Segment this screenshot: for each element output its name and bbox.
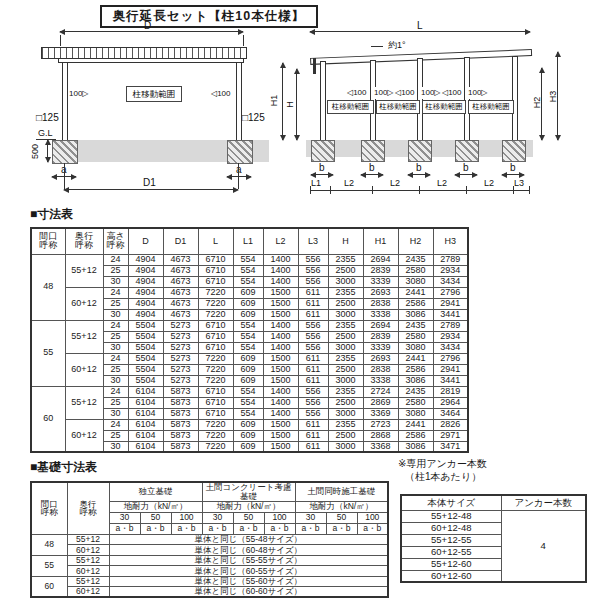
dim-value-cell: 554 [233, 265, 263, 276]
dim-value-cell: 5504 [128, 364, 163, 375]
dim-value-cell: 5273 [163, 353, 198, 364]
move-arrow-left-icon: ◁100 [442, 87, 462, 99]
dim-value-cell: 1500 [263, 375, 298, 386]
dim-value-cell: 3434 [433, 276, 468, 287]
table-row: 6055+12単体と同じ（55-60サイズ） [31, 576, 388, 587]
dim-value-cell: 2580 [398, 265, 433, 276]
table-row: 5555+12245504527367105541400556235526942… [31, 320, 468, 331]
depth-name-cell: 60+12 [65, 419, 103, 452]
dim-value-cell: 2435 [398, 386, 433, 397]
dim-value-cell: 4904 [128, 276, 163, 287]
dim-value-cell: 7220 [198, 441, 233, 452]
dim-value-cell: 2789 [433, 254, 468, 265]
dim-value-cell: 609 [233, 441, 263, 452]
dim-label-l2: L2 [437, 179, 447, 188]
dim-value-cell: 4673 [163, 309, 198, 320]
dim-value-cell: 5273 [163, 342, 198, 353]
dim-value-cell: 3471 [433, 441, 468, 452]
post-move-range-label: 柱移動範囲 [468, 100, 514, 114]
load-value-header: 30 [109, 512, 140, 523]
anchor-note-line2: （柱1本あたり） [398, 471, 487, 484]
foundation-table: 間口 呼称奥行 呼称独立基礎土間コンクリート考慮基礎土間同時施工基礎地耐力（kN… [30, 481, 389, 598]
move-arrow-left-icon: ◁100 [211, 88, 231, 100]
dimension-line-500 [47, 140, 48, 162]
dim-value-cell: 609 [233, 419, 263, 430]
dim-label-l3: L3 [514, 179, 524, 188]
dim-value-cell: 5873 [163, 408, 198, 419]
post-size-label-left: □125 [36, 113, 59, 123]
anchor-note-line1: ※専用アンカー本数 [398, 458, 487, 471]
height-name-cell: 24 [103, 353, 128, 364]
dim-value-cell: 2971 [433, 430, 468, 441]
foundation-table-heading: ■基礎寸法表 [30, 459, 97, 476]
page-title: 奥行延長セット【柱10本仕様】 [100, 5, 318, 28]
dim-value-cell: 3086 [398, 309, 433, 320]
dim-value-cell: 7220 [198, 298, 233, 309]
dim-value-cell: 7220 [198, 287, 233, 298]
dimension-line-b [502, 174, 524, 175]
ab-header: a・b [171, 523, 202, 534]
dim-value-cell: 2934 [433, 265, 468, 276]
height-name-cell: 24 [103, 287, 128, 298]
dim-value-cell: 1400 [263, 397, 298, 408]
column-header: L [198, 228, 233, 254]
dim-value-cell: 2693 [363, 353, 398, 364]
table-row: 60+1224610458737220609150061123552723244… [31, 419, 468, 430]
dimension-line-h1 [282, 63, 283, 140]
dim-value-cell: 3080 [398, 342, 433, 353]
dim-value-cell: 556 [298, 408, 328, 419]
dim-value-cell: 3441 [433, 375, 468, 386]
dim-value-cell: 6104 [128, 397, 163, 408]
height-name-cell: 25 [103, 331, 128, 342]
width-name-cell: 55 [31, 555, 67, 576]
dim-value-cell: 5873 [163, 441, 198, 452]
post-move-range-label: 柱移動範囲 [422, 100, 466, 114]
dim-value-cell: 5273 [163, 331, 198, 342]
dim-value-cell: 3080 [398, 408, 433, 419]
dim-value-cell: 2838 [363, 364, 398, 375]
column-header: H3 [433, 228, 468, 254]
dim-value-cell: 2580 [398, 397, 433, 408]
dim-label-b: b [463, 163, 469, 173]
dim-value-cell: 5873 [163, 386, 198, 397]
dim-value-cell: 4904 [128, 287, 163, 298]
dim-label-l2: L2 [390, 179, 400, 188]
footing [408, 140, 432, 162]
dim-value-cell: 554 [233, 276, 263, 287]
dim-value-cell: 554 [233, 408, 263, 419]
dim-value-cell: 3080 [398, 276, 433, 287]
dim-value-cell: 6710 [198, 342, 233, 353]
dim-label-h3: H3 [549, 91, 558, 103]
dimension-line-h [296, 69, 297, 140]
dim-label-l2: L2 [484, 179, 494, 188]
table-row: 60+1224490446737220609150061123552693244… [31, 287, 468, 298]
body-size-cell: 55+12-48 [401, 510, 501, 522]
dim-value-cell: 3086 [398, 441, 433, 452]
dim-value-cell: 609 [233, 430, 263, 441]
dim-value-cell: 2441 [398, 419, 433, 430]
depth-name-cell: 60+12 [67, 545, 109, 556]
dim-label-l: L [417, 21, 423, 31]
dim-value-cell: 2789 [433, 320, 468, 331]
dim-value-cell: 4673 [163, 287, 198, 298]
table-row: 60+12単体と同じ（60-48サイズ） [31, 545, 388, 556]
extension-line [238, 163, 239, 189]
dim-value-cell: 5504 [128, 320, 163, 331]
height-name-cell: 24 [103, 320, 128, 331]
dimension-line-b [455, 174, 477, 175]
dim-value-cell: 5273 [163, 375, 198, 386]
dim-value-cell: 5873 [163, 430, 198, 441]
depth-name-cell: 55+12 [67, 534, 109, 545]
ab-header: a・b [295, 523, 326, 534]
dim-value-cell: 609 [233, 287, 263, 298]
front-beam [58, 58, 244, 63]
dim-value-cell: 4904 [128, 265, 163, 276]
dim-value-cell: 554 [233, 386, 263, 397]
dim-value-cell: 609 [233, 364, 263, 375]
height-name-cell: 24 [103, 419, 128, 430]
dim-value-cell: 7220 [198, 430, 233, 441]
footing-left [52, 140, 78, 164]
dim-value-cell: 2586 [398, 364, 433, 375]
table-row: 4855+12244904467367105541400556235526942… [31, 254, 468, 265]
dim-value-cell: 2941 [433, 364, 468, 375]
dim-value-cell: 611 [298, 287, 328, 298]
dim-value-cell: 1400 [263, 408, 298, 419]
column-header: L1 [233, 228, 263, 254]
dim-value-cell: 2355 [328, 353, 363, 364]
dim-value-cell: 4673 [163, 298, 198, 309]
column-header: L2 [263, 228, 298, 254]
load-value-header: 30 [295, 512, 326, 523]
dim-value-cell: 2500 [328, 298, 363, 309]
dim-value-cell: 2826 [433, 419, 468, 430]
table-row: 60+12単体と同じ（60-60サイズ） [31, 587, 388, 598]
footing [361, 140, 385, 162]
dim-label-d1: D1 [143, 178, 156, 188]
dim-value-cell: 1500 [263, 364, 298, 375]
depth-name-cell: 55+12 [65, 254, 103, 287]
dimension-line-l [310, 31, 530, 32]
dim-value-cell: 3464 [433, 408, 468, 419]
depth-name-cell: 60+12 [67, 566, 109, 577]
tick [310, 186, 311, 194]
dimension-line-b [311, 174, 333, 175]
dim-value-cell: 2500 [328, 265, 363, 276]
dim-value-cell: 4673 [163, 254, 198, 265]
dim-value-cell: 5273 [163, 320, 198, 331]
tick [466, 186, 467, 194]
dim-label-l1: L1 [311, 179, 321, 188]
dim-value-cell: 611 [298, 298, 328, 309]
depth-name-cell: 55+12 [67, 555, 109, 566]
dim-value-cell: 2964 [433, 397, 468, 408]
dim-label-b: b [369, 163, 375, 173]
dim-value-cell: 6710 [198, 254, 233, 265]
dim-value-cell: 2796 [433, 287, 468, 298]
dim-value-cell: 3000 [328, 375, 363, 386]
dim-value-cell: 2355 [328, 320, 363, 331]
dimension-line-d1 [64, 189, 238, 190]
height-name-cell: 30 [103, 309, 128, 320]
dim-value-cell: 6104 [128, 441, 163, 452]
load-value-header: 50 [233, 512, 264, 523]
dim-value-cell: 6710 [198, 276, 233, 287]
dim-value-cell: 7220 [198, 353, 233, 364]
dim-value-cell: 556 [298, 397, 328, 408]
dim-value-cell: 2580 [398, 331, 433, 342]
footing [311, 140, 335, 162]
move-arrow-left-icon: ◁100 [395, 87, 415, 99]
width-name-cell: 55 [31, 320, 65, 386]
dim-value-cell: 1500 [263, 353, 298, 364]
dim-value-cell: 609 [233, 353, 263, 364]
footing [455, 140, 479, 162]
dim-value-cell: 2694 [363, 254, 398, 265]
slope-line [371, 46, 383, 47]
dim-value-cell: 556 [298, 320, 328, 331]
depth-name-cell: 60+12 [67, 587, 109, 598]
depth-name-cell: 60+12 [65, 353, 103, 386]
dim-value-cell: 6710 [198, 320, 233, 331]
ab-header: a・b [202, 523, 233, 534]
body-size-cell: 60+12-55 [401, 546, 501, 558]
same-as-single-note-cell: 単体と同じ（60-48サイズ） [109, 545, 388, 556]
dim-value-cell: 554 [233, 320, 263, 331]
dim-value-cell: 611 [298, 419, 328, 430]
depth-name-cell: 55+12 [65, 386, 103, 419]
dim-value-cell: 1400 [263, 342, 298, 353]
dim-label-b: b [319, 163, 325, 173]
table-row: 4855+12単体と同じ（55-48サイズ） [31, 534, 388, 545]
dim-value-cell: 611 [298, 441, 328, 452]
dim-value-cell: 7220 [198, 364, 233, 375]
post-move-range-label: 柱移動範囲 [376, 100, 420, 114]
column-header: D1 [163, 228, 198, 254]
foundation-group-header: 土間同時施工基礎 [295, 482, 388, 501]
dim-value-cell: 609 [233, 309, 263, 320]
slope-label: 約1° [388, 41, 406, 50]
size-col-header: 本体サイズ [401, 495, 501, 510]
dim-value-cell: 3369 [363, 408, 398, 419]
dim-value-cell: 2839 [363, 265, 398, 276]
same-as-single-note-cell: 単体と同じ（55-48サイズ） [109, 534, 388, 545]
same-as-single-note-cell: 単体と同じ（55-55サイズ） [109, 555, 388, 566]
dim-value-cell: 2723 [363, 419, 398, 430]
column-header: D [128, 228, 163, 254]
post-move-range-label: 柱移動範囲 [327, 100, 374, 114]
anchor-count-cell: 4 [501, 510, 586, 582]
dimension-line-b [408, 174, 430, 175]
dim-table-heading: ■寸法表 [30, 206, 73, 223]
ab-header: a・b [233, 523, 264, 534]
width-col-header: 間口 呼称 [31, 482, 67, 534]
dim-label-h1: H1 [270, 95, 279, 107]
move-arrow-right-icon: 100▷ [69, 88, 89, 100]
dim-value-cell: 554 [233, 331, 263, 342]
dim-value-cell: 556 [298, 265, 328, 276]
dim-value-cell: 6104 [128, 419, 163, 430]
dim-label-h: H [286, 101, 295, 108]
tick [330, 186, 331, 194]
dim-value-cell: 4904 [128, 298, 163, 309]
dim-value-cell: 1500 [263, 430, 298, 441]
gutter [313, 58, 316, 74]
dim-value-cell: 2934 [433, 331, 468, 342]
dim-value-cell: 2868 [363, 430, 398, 441]
bearing-capacity-header: 地耐力（kN/㎡） [202, 501, 295, 512]
dim-value-cell: 3000 [328, 276, 363, 287]
height-name-cell: 25 [103, 298, 128, 309]
dim-value-cell: 2694 [363, 320, 398, 331]
dim-value-cell: 2500 [328, 331, 363, 342]
table-row: 55+12-484 [401, 510, 586, 522]
tick [372, 186, 373, 194]
dimension-line-d [60, 31, 243, 32]
foundation-group-header: 独立基礎 [109, 482, 202, 501]
dim-value-cell: 2441 [398, 287, 433, 298]
ab-header: a・b [326, 523, 357, 534]
dim-value-cell: 7220 [198, 375, 233, 386]
dim-value-cell: 2941 [433, 298, 468, 309]
dim-value-cell: 611 [298, 309, 328, 320]
column-header: L3 [298, 228, 328, 254]
tick [513, 186, 514, 194]
dim-label-b: b [510, 163, 516, 173]
dim-value-cell: 2355 [328, 386, 363, 397]
dim-value-cell: 2586 [398, 298, 433, 309]
dim-value-cell: 1500 [263, 287, 298, 298]
body-size-cell: 60+12-48 [401, 522, 501, 534]
column-header: H1 [363, 228, 398, 254]
dim-value-cell: 6104 [128, 430, 163, 441]
move-arrow-right-icon: 100▷ [374, 87, 394, 99]
dim-label-500: 500 [31, 144, 40, 159]
table-row: 60+1224550452737220609150061123552693244… [31, 353, 468, 364]
tick [419, 186, 420, 194]
dim-value-cell: 2435 [398, 320, 433, 331]
dim-value-cell: 554 [233, 397, 263, 408]
dim-value-cell: 554 [233, 342, 263, 353]
dim-label-h2: H2 [533, 97, 542, 109]
dim-value-cell: 5873 [163, 397, 198, 408]
dim-value-cell: 1500 [263, 419, 298, 430]
ab-header: a・b [357, 523, 388, 534]
dim-value-cell: 2796 [433, 353, 468, 364]
dim-value-cell: 5873 [163, 419, 198, 430]
dim-label-d: D [144, 21, 151, 31]
dim-value-cell: 1500 [263, 298, 298, 309]
dim-value-cell: 556 [298, 276, 328, 287]
dim-value-cell: 611 [298, 430, 328, 441]
same-as-single-note-cell: 単体と同じ（55-60サイズ） [109, 576, 388, 587]
column-header: H2 [398, 228, 433, 254]
body-size-cell: 55+12-60 [401, 558, 501, 570]
column-header: 高さ 呼称 [103, 228, 128, 254]
side-post-1 [320, 61, 326, 142]
count-col-header: アンカー本数 [501, 495, 586, 510]
footing-right [227, 140, 253, 164]
move-arrow-right-icon: 100▷ [421, 87, 441, 99]
dim-value-cell: 7220 [198, 309, 233, 320]
extension-line [60, 35, 61, 46]
width-name-cell: 48 [31, 254, 65, 320]
dim-value-cell: 556 [298, 254, 328, 265]
height-name-cell: 25 [103, 430, 128, 441]
dim-value-cell: 3368 [363, 441, 398, 452]
load-value-header: 50 [140, 512, 171, 523]
dim-value-cell: 554 [233, 254, 263, 265]
height-name-cell: 25 [103, 364, 128, 375]
dim-label-l2: L2 [344, 179, 354, 188]
dim-value-cell: 2435 [398, 254, 433, 265]
dim-value-cell: 3000 [328, 309, 363, 320]
dim-value-cell: 611 [298, 364, 328, 375]
column-header: 間口 呼称 [31, 228, 65, 254]
dim-value-cell: 2724 [363, 386, 398, 397]
dim-value-cell: 6104 [128, 408, 163, 419]
dim-value-cell: 556 [298, 386, 328, 397]
dim-value-cell: 3441 [433, 309, 468, 320]
extension-line [243, 35, 244, 46]
height-name-cell: 24 [103, 254, 128, 265]
move-arrow-right-icon: 100▷ [468, 87, 488, 99]
dim-value-cell: 1400 [263, 320, 298, 331]
table-row: 5555+12単体と同じ（55-55サイズ） [31, 555, 388, 566]
dim-value-cell: 6710 [198, 331, 233, 342]
bearing-capacity-header: 地耐力（kN/㎡） [295, 501, 388, 512]
dim-value-cell: 2839 [363, 331, 398, 342]
height-name-cell: 30 [103, 276, 128, 287]
height-name-cell: 25 [103, 397, 128, 408]
load-value-header: 100 [171, 512, 202, 523]
spec-sheet: 奥行延長セット【柱10本仕様】 D 100▷ ◁100 柱移動範囲 □125 □… [0, 0, 600, 600]
dim-value-cell: 3338 [363, 309, 398, 320]
dim-value-cell: 2355 [328, 287, 363, 298]
dim-value-cell: 2441 [398, 353, 433, 364]
dim-value-cell: 556 [298, 331, 328, 342]
ab-header: a・b [140, 523, 171, 534]
dim-value-cell: 611 [298, 375, 328, 386]
dim-value-cell: 2500 [328, 397, 363, 408]
anchor-note: ※専用アンカー本数 （柱1本あたり） [398, 458, 487, 483]
dim-value-cell: 3338 [363, 375, 398, 386]
footing [502, 140, 526, 162]
depth-name-cell: 55+12 [67, 576, 109, 587]
dim-value-cell: 2500 [328, 430, 363, 441]
dim-value-cell: 3000 [328, 441, 363, 452]
post-size-label-right: □125 [242, 113, 265, 123]
dim-value-cell: 4673 [163, 265, 198, 276]
table-row: 60+12単体と同じ（60-55サイズ） [31, 566, 388, 577]
depth-name-cell: 60+12 [65, 287, 103, 320]
dim-value-cell: 1400 [263, 386, 298, 397]
load-value-header: 30 [202, 512, 233, 523]
extension-line [64, 163, 65, 189]
dim-value-cell: 3086 [398, 375, 433, 386]
dimension-table: 間口 呼称奥行 呼称高さ 呼称DD1LL1L2L3HH1H2H34855+122… [30, 227, 469, 453]
dim-value-cell: 5504 [128, 375, 163, 386]
dim-value-cell: 4904 [128, 309, 163, 320]
dim-value-cell: 6710 [198, 397, 233, 408]
ground-level-label: G.L [38, 129, 53, 138]
dim-value-cell: 5504 [128, 331, 163, 342]
height-name-cell: 25 [103, 265, 128, 276]
column-header: H [328, 228, 363, 254]
